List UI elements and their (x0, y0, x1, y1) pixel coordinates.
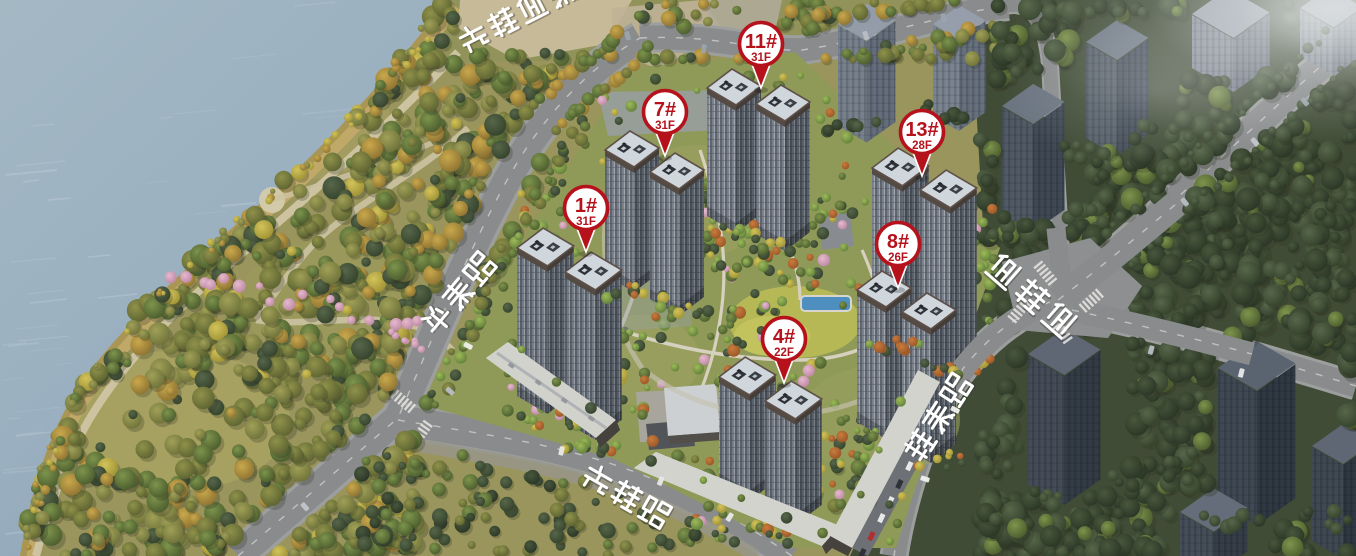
svg-text:8#: 8# (887, 231, 909, 253)
svg-text:26F: 26F (888, 252, 908, 264)
svg-text:31F: 31F (655, 120, 675, 132)
svg-text:11#: 11# (745, 31, 777, 53)
svg-text:31F: 31F (751, 52, 771, 64)
svg-text:13#: 13# (905, 119, 938, 141)
svg-text:4#: 4# (773, 326, 795, 348)
svg-text:22F: 22F (774, 347, 794, 359)
svg-text:1#: 1# (575, 195, 597, 217)
svg-text:28F: 28F (912, 140, 932, 152)
svg-text:31F: 31F (576, 216, 596, 228)
svg-text:7#: 7# (654, 99, 676, 121)
